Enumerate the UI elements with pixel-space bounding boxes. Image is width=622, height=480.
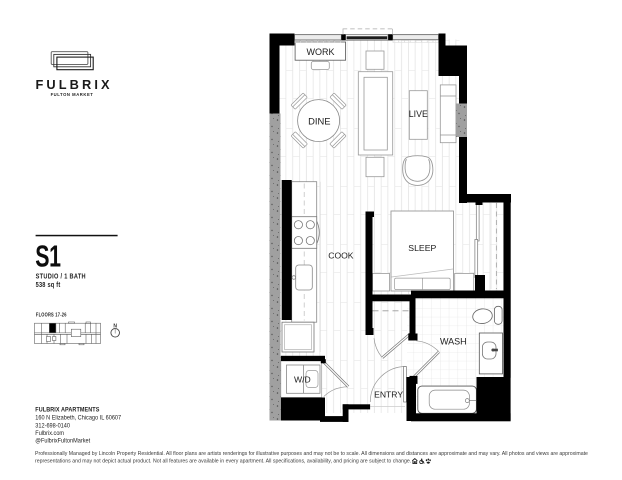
svg-text:FULBRIX: FULBRIX	[36, 77, 113, 92]
svg-text:SLEEP: SLEEP	[408, 243, 436, 253]
svg-text:@FulbrixFultonMarket: @FulbrixFultonMarket	[35, 438, 90, 444]
svg-text:538 sq ft: 538 sq ft	[36, 281, 61, 289]
svg-text:COOK: COOK	[328, 251, 354, 261]
svg-text:S1: S1	[35, 239, 60, 274]
svg-text:FULBRIX APARTMENTS: FULBRIX APARTMENTS	[35, 407, 99, 413]
svg-text:representations and may not de: representations and may not depict actua…	[35, 458, 411, 464]
svg-text:WASH: WASH	[440, 336, 467, 346]
svg-text:DINE: DINE	[308, 116, 330, 127]
svg-text:ENTRY: ENTRY	[374, 389, 403, 399]
svg-text:W/D: W/D	[294, 375, 311, 385]
svg-text:312-698-0140: 312-698-0140	[35, 423, 70, 429]
svg-text:FLOORS 17-26: FLOORS 17-26	[36, 312, 67, 318]
svg-text:LIVE: LIVE	[409, 109, 428, 119]
svg-text:Professionally Managed by Linc: Professionally Managed by Lincoln Proper…	[35, 451, 588, 457]
svg-text:STUDIO / 1 BATH: STUDIO / 1 BATH	[36, 273, 86, 281]
svg-text:FULTON MARKET: FULTON MARKET	[51, 92, 94, 97]
svg-text:160 N Elizabeth, Chicago IL 60: 160 N Elizabeth, Chicago IL 60607	[35, 415, 121, 421]
svg-text:Fulbrix.com: Fulbrix.com	[35, 431, 64, 437]
svg-text:WORK: WORK	[307, 47, 335, 57]
